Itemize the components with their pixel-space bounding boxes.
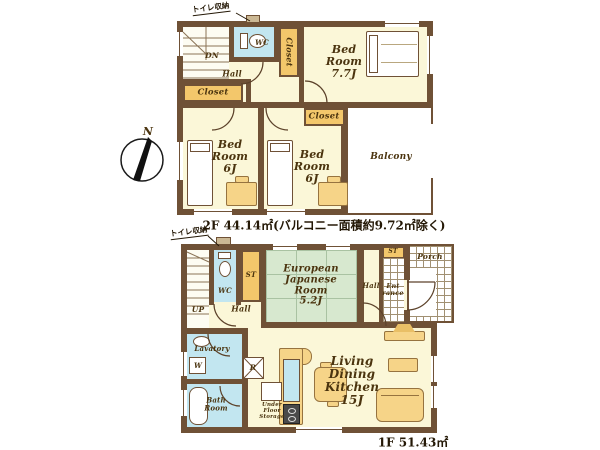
- window: [427, 36, 433, 74]
- window: [177, 142, 183, 180]
- stove-icon: [283, 404, 300, 424]
- window: [431, 386, 437, 408]
- wall: [209, 250, 214, 305]
- pillow-icon: [190, 143, 210, 152]
- wall: [229, 57, 279, 62]
- sofa-icon: [376, 388, 424, 422]
- label-washer: W: [194, 362, 202, 370]
- bed-icon: [366, 31, 419, 77]
- label-under-floor-storage: Under Floor Storage: [259, 403, 284, 421]
- kitchen-sink-icon: [283, 359, 300, 402]
- balcony-railing-gap: [431, 124, 435, 178]
- label-ldk: Living Dining Kitchen 15J: [325, 355, 379, 407]
- label-stairs-up: UP: [192, 306, 205, 314]
- label-wc-1f: WC: [218, 287, 232, 295]
- low-table-icon: [388, 358, 418, 372]
- compass-icon: [121, 137, 163, 181]
- wall: [261, 250, 266, 328]
- label-entrance: Ent rance: [382, 283, 403, 297]
- under-floor-storage-icon: [261, 382, 282, 401]
- bed-icon: [267, 140, 293, 206]
- window: [326, 244, 350, 250]
- label-stairs-dn: DN: [205, 52, 219, 60]
- burner-icon: [288, 408, 296, 414]
- bed-icon: [187, 140, 213, 206]
- label-hall-2f: Hall: [222, 70, 242, 79]
- window: [267, 209, 305, 215]
- wall: [242, 334, 248, 433]
- wall: [404, 244, 410, 280]
- label-bedroom-left: Bed Room 6J: [212, 139, 248, 175]
- burner-icon: [288, 416, 296, 422]
- window: [177, 32, 183, 56]
- window: [431, 356, 437, 382]
- floor1-staircase: [187, 250, 209, 328]
- bed-line: [381, 44, 417, 45]
- label-bathroom: Bath Room: [204, 396, 227, 411]
- label-st-left: ST: [246, 271, 257, 279]
- label-porch: Porch: [417, 253, 442, 261]
- floor1-area-text: 1F 51.43㎡: [378, 434, 449, 450]
- toilet-bowl-icon: [219, 261, 231, 277]
- label-st-right: ST: [388, 249, 397, 255]
- wall: [258, 108, 264, 215]
- window: [194, 209, 232, 215]
- bed-line: [381, 62, 417, 63]
- floor1-toilet-storage-note: トイレ収納: [169, 224, 208, 240]
- label-hall-1f-right: Hall: [362, 282, 379, 290]
- toilet-storage-shelf: [246, 15, 260, 23]
- window: [181, 390, 187, 416]
- desk-icon: [318, 182, 348, 206]
- pillow-icon: [270, 143, 290, 152]
- floor-plan-image: N DN WC Hall Closet Closet Closet Bed Ro…: [0, 0, 600, 450]
- compass-north-label: N: [143, 126, 153, 138]
- toilet-tank-icon: [218, 252, 231, 259]
- label-japanese-room: European Japanese Room 5.2J: [283, 264, 339, 307]
- window: [385, 21, 419, 27]
- porch-door-zone: [409, 268, 436, 316]
- toilet-tank-icon: [240, 33, 248, 49]
- label-bedroom-mid: Bed Room 6J: [294, 149, 330, 185]
- label-lavatory: Lavatory: [194, 345, 229, 353]
- window: [296, 427, 342, 433]
- wall: [299, 27, 304, 107]
- label-hall-1f-left: Hall: [231, 305, 251, 314]
- desk-icon: [226, 182, 257, 206]
- label-closet-top: Closet: [285, 37, 294, 66]
- wall: [236, 250, 241, 305]
- pillow-icon: [369, 35, 378, 73]
- tv-board-icon: [384, 331, 425, 341]
- floor2-toilet-storage-note: トイレ収納: [191, 0, 230, 16]
- label-bedroom-main: Bed Room 7.7J: [326, 44, 362, 80]
- label-closet-mid: Closet: [309, 112, 340, 121]
- label-wc-2f: WC: [255, 39, 269, 47]
- window: [273, 244, 297, 250]
- window: [181, 352, 187, 376]
- sofa-seat-line: [381, 395, 419, 396]
- floor2-area-text: 2F 44.14㎡(バルコニー面積約9.72㎡除く): [203, 217, 446, 234]
- label-closet-left: Closet: [198, 88, 229, 97]
- label-balcony: Balcony: [370, 153, 412, 163]
- label-refrigerator: R: [250, 364, 256, 372]
